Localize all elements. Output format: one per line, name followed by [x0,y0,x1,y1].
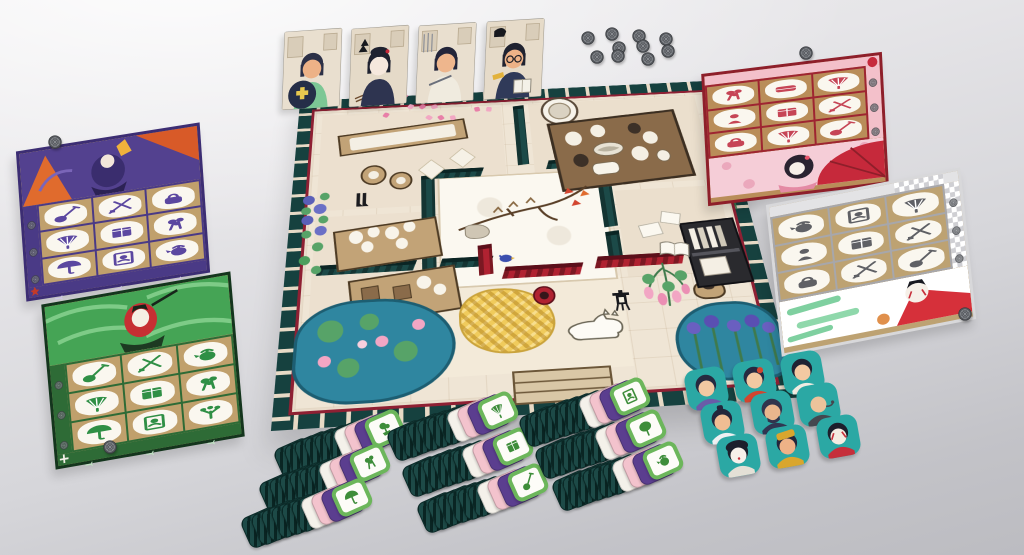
gold-hat-man-face-illustration [764,423,811,470]
coin-token-cluster[interactable] [641,51,655,65]
coin-token-cluster[interactable] [611,48,625,62]
teapot-icon [650,448,676,473]
coin-token[interactable] [48,134,62,148]
character-token-geisha[interactable] [715,432,762,479]
character-token-kabuki-actor[interactable] [815,413,862,460]
coin-token-cluster[interactable] [581,30,595,44]
coin-token-cluster[interactable] [636,38,650,52]
geisha-face-illustration [715,432,762,479]
coin-token-cluster[interactable] [661,43,675,57]
coin-token[interactable] [958,306,972,320]
coin-token[interactable] [103,439,117,453]
coin-token[interactable] [799,45,813,59]
coin-token-cluster[interactable] [605,26,619,40]
coin-token-cluster[interactable] [590,49,604,63]
tabletop-background [0,0,1024,555]
goods-tile-stacks [0,0,1024,555]
kabuki-actor-face-illustration [815,413,862,460]
character-token-gold-hat-man[interactable] [764,423,811,470]
goods-tile-stack-teapot[interactable] [0,0,1024,555]
